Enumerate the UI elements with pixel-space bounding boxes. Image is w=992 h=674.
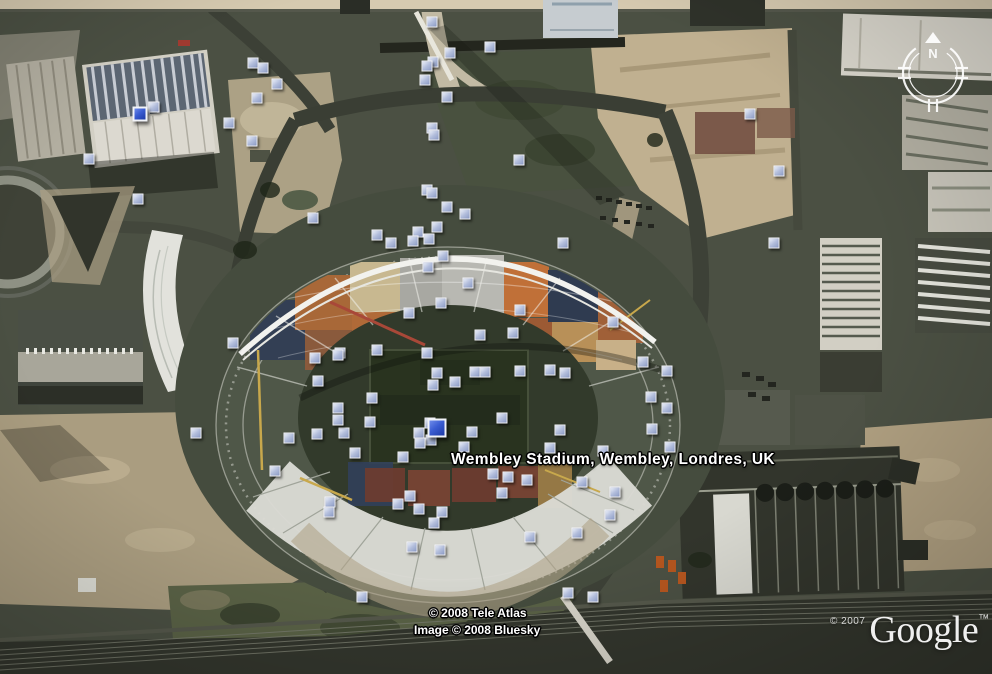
photo-marker[interactable] — [503, 472, 514, 483]
google-earth-viewport[interactable]: N Wembley Stadium, Wembley, Londres, UK … — [0, 0, 992, 674]
photo-marker[interactable] — [252, 93, 263, 104]
google-watermark: © 2007Google™ — [830, 608, 989, 652]
photo-marker[interactable] — [662, 366, 673, 377]
photo-marker[interactable] — [405, 491, 416, 502]
photo-marker[interactable] — [545, 365, 556, 376]
photo-marker[interactable] — [774, 166, 785, 177]
compass-north-label: N — [928, 46, 937, 61]
photo-marker[interactable] — [333, 350, 344, 361]
photo-marker[interactable] — [435, 545, 446, 556]
photo-marker[interactable] — [445, 48, 456, 59]
photo-marker[interactable] — [284, 433, 295, 444]
photo-marker[interactable] — [428, 380, 439, 391]
photo-marker[interactable] — [605, 510, 616, 521]
photo-marker[interactable] — [367, 393, 378, 404]
photo-marker[interactable] — [407, 542, 418, 553]
photo-marker[interactable] — [312, 429, 323, 440]
photo-marker[interactable] — [408, 236, 419, 247]
photo-marker[interactable] — [572, 528, 583, 539]
photo-marker[interactable] — [422, 61, 433, 72]
trademark-symbol: ™ — [978, 613, 989, 625]
photo-marker[interactable] — [436, 298, 447, 309]
photo-marker[interactable] — [133, 194, 144, 205]
photo-marker-featured[interactable] — [428, 419, 447, 438]
google-logo: Google — [869, 609, 978, 651]
photo-marker[interactable] — [437, 507, 448, 518]
attribution-line1: © 2008 Tele Atlas — [429, 605, 540, 622]
photo-marker[interactable] — [442, 202, 453, 213]
photo-marker[interactable] — [398, 452, 409, 463]
photo-marker[interactable] — [608, 317, 619, 328]
photo-marker[interactable] — [558, 238, 569, 249]
photo-marker-featured[interactable] — [133, 107, 148, 122]
photo-marker[interactable] — [514, 155, 525, 166]
photo-marker[interactable] — [357, 592, 368, 603]
photo-marker[interactable] — [488, 469, 499, 480]
photo-marker[interactable] — [662, 403, 673, 414]
photo-marker[interactable] — [272, 79, 283, 90]
photo-marker[interactable] — [365, 417, 376, 428]
photo-marker[interactable] — [427, 188, 438, 199]
photo-marker[interactable] — [525, 532, 536, 543]
photo-marker[interactable] — [424, 234, 435, 245]
photo-marker[interactable] — [467, 427, 478, 438]
photo-marker[interactable] — [415, 438, 426, 449]
photo-marker[interactable] — [497, 413, 508, 424]
photo-marker[interactable] — [610, 487, 621, 498]
map-attribution: © 2008 Tele Atlas Image © 2008 Bluesky — [414, 605, 540, 639]
place-label[interactable]: Wembley Stadium, Wembley, Londres, UK — [451, 451, 775, 469]
photo-marker[interactable] — [485, 42, 496, 53]
photo-marker[interactable] — [422, 348, 433, 359]
photo-marker[interactable] — [560, 368, 571, 379]
photo-marker[interactable] — [577, 477, 588, 488]
photo-marker[interactable] — [372, 230, 383, 241]
photo-marker[interactable] — [497, 488, 508, 499]
photo-marker[interactable] — [270, 466, 281, 477]
photo-marker[interactable] — [333, 415, 344, 426]
photo-marker[interactable] — [228, 338, 239, 349]
photo-marker[interactable] — [522, 475, 533, 486]
photo-marker[interactable] — [442, 92, 453, 103]
photo-marker[interactable] — [745, 109, 756, 120]
photo-marker[interactable] — [460, 209, 471, 220]
photo-marker[interactable] — [450, 377, 461, 388]
imagery-copyright-year: © 2007 — [830, 616, 865, 627]
photo-marker[interactable] — [404, 308, 415, 319]
photo-marker[interactable] — [191, 428, 202, 439]
photo-marker[interactable] — [508, 328, 519, 339]
photo-marker[interactable] — [515, 366, 526, 377]
photo-marker[interactable] — [429, 130, 440, 141]
photo-marker[interactable] — [313, 376, 324, 387]
photo-marker[interactable] — [414, 504, 425, 515]
photo-marker[interactable] — [515, 305, 526, 316]
photo-marker[interactable] — [555, 425, 566, 436]
photo-marker[interactable] — [563, 588, 574, 599]
photo-marker[interactable] — [258, 63, 269, 74]
photo-marker[interactable] — [149, 102, 160, 113]
photo-marker[interactable] — [339, 428, 350, 439]
photo-marker[interactable] — [84, 154, 95, 165]
photo-marker[interactable] — [429, 518, 440, 529]
photo-marker[interactable] — [324, 507, 335, 518]
photo-marker[interactable] — [310, 353, 321, 364]
photo-marker[interactable] — [247, 136, 258, 147]
photo-marker[interactable] — [224, 118, 235, 129]
photo-marker[interactable] — [372, 345, 383, 356]
photo-marker[interactable] — [333, 403, 344, 414]
photo-marker[interactable] — [769, 238, 780, 249]
photo-marker[interactable] — [638, 357, 649, 368]
photo-marker[interactable] — [432, 368, 443, 379]
photo-marker[interactable] — [308, 213, 319, 224]
photo-marker[interactable] — [350, 448, 361, 459]
photo-marker[interactable] — [463, 278, 474, 289]
photo-marker[interactable] — [647, 424, 658, 435]
photo-marker[interactable] — [427, 17, 438, 28]
photo-marker[interactable] — [420, 75, 431, 86]
attribution-line2: Image © 2008 Bluesky — [414, 622, 540, 639]
photo-marker[interactable] — [588, 592, 599, 603]
photo-marker[interactable] — [393, 499, 404, 510]
photo-marker[interactable] — [423, 262, 434, 273]
photo-marker[interactable] — [438, 251, 449, 262]
photo-marker[interactable] — [480, 367, 491, 378]
photo-marker[interactable] — [646, 392, 657, 403]
photo-marker[interactable] — [386, 238, 397, 249]
photo-marker[interactable] — [475, 330, 486, 341]
photo-marker[interactable] — [432, 222, 443, 233]
